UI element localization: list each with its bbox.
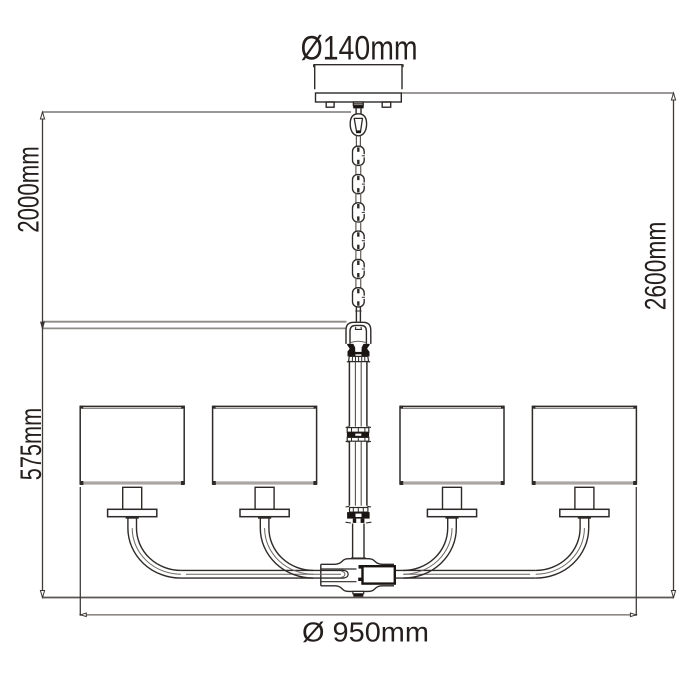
svg-text:2600mm: 2600mm: [640, 222, 673, 311]
svg-text:Ø 950mm: Ø 950mm: [302, 617, 429, 648]
svg-text:2000mm: 2000mm: [12, 146, 45, 233]
svg-text:575mm: 575mm: [15, 408, 48, 481]
svg-text:Ø140mm: Ø140mm: [301, 29, 418, 67]
